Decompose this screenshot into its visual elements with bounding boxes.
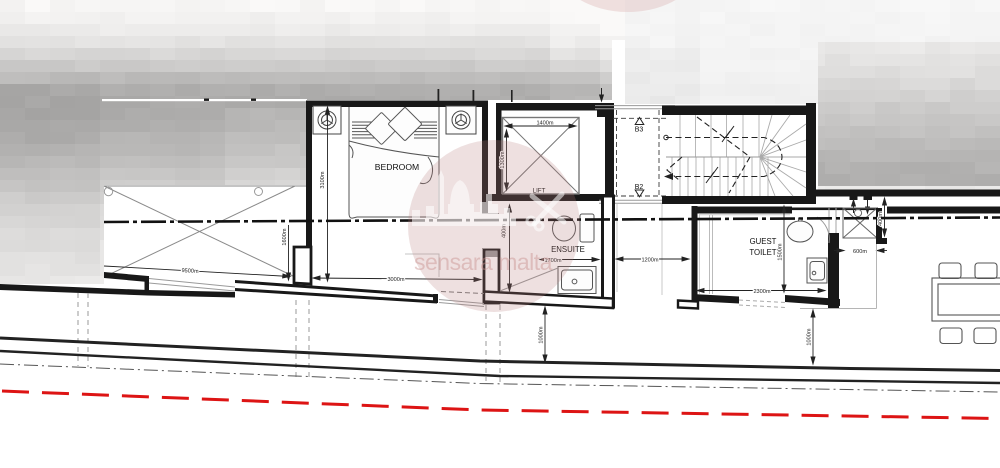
svg-text:BEDROOM: BEDROOM — [375, 162, 419, 172]
svg-text:2300m: 2300m — [753, 289, 770, 295]
svg-text:TOILET: TOILET — [749, 248, 776, 257]
svg-text:1000m: 1000m — [539, 326, 545, 343]
svg-text:600m: 600m — [853, 249, 867, 255]
svg-text:GUEST: GUEST — [750, 237, 777, 246]
svg-text:1200m: 1200m — [641, 258, 658, 264]
svg-text:1400m: 1400m — [536, 121, 553, 127]
svg-text:sensara malta: sensara malta — [414, 249, 553, 275]
svg-text:3000m: 3000m — [387, 277, 404, 283]
svg-text:1600m: 1600m — [282, 228, 288, 245]
svg-text:1500m: 1500m — [778, 243, 784, 260]
svg-text:3100m: 3100m — [320, 171, 326, 188]
svg-text:B3: B3 — [635, 127, 644, 134]
svg-text:1000m: 1000m — [807, 328, 813, 345]
svg-text:9500m: 9500m — [181, 268, 199, 275]
